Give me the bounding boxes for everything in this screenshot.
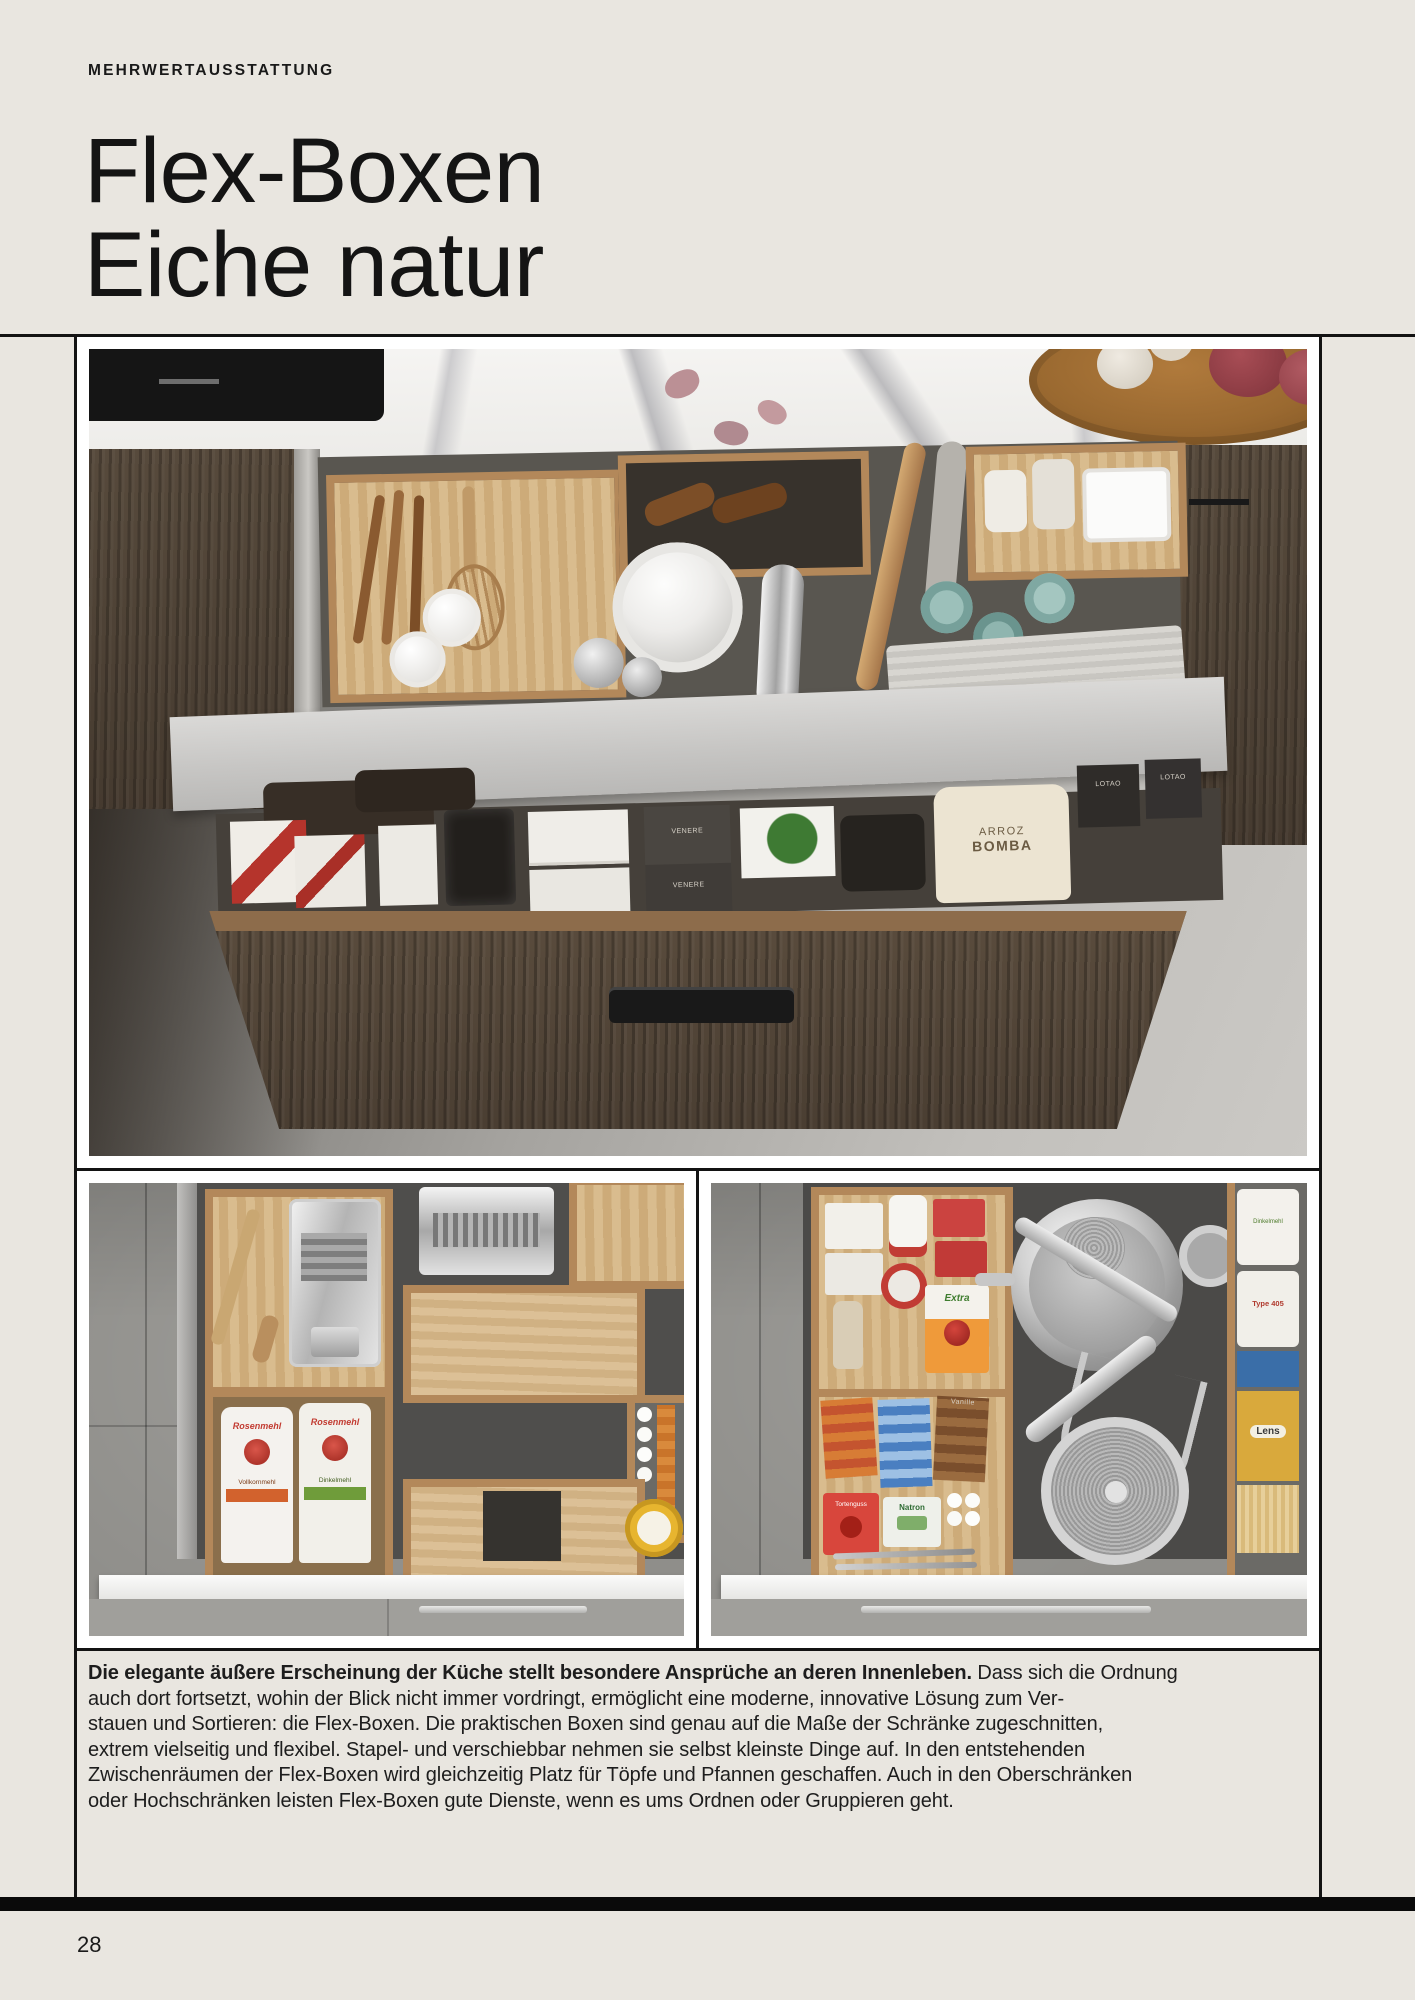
cooktop (89, 349, 384, 421)
tea-box-red-ribbon (294, 834, 366, 908)
chrome-handle (861, 1606, 1151, 1613)
body-lead-rest: Dass sich die Ordnung (972, 1662, 1178, 1684)
flex-box-tablet (403, 1479, 645, 1589)
flex-box-empty-small (569, 1183, 684, 1289)
glass-bottle (833, 1301, 863, 1369)
tile-seam (145, 1183, 147, 1636)
egg (947, 1493, 962, 1508)
kicker: MEHRWERTAUSSTATTUNG (88, 62, 334, 80)
egg (947, 1511, 962, 1526)
egg (965, 1511, 980, 1526)
pasta-cutter-rollers (433, 1213, 540, 1247)
packet-stack-orange (820, 1397, 877, 1478)
flour-color-band (226, 1489, 288, 1502)
dark-board (483, 1491, 561, 1561)
body-line: auch dort fortsetzt, wohin der Blick nic… (88, 1687, 1303, 1713)
wooden-fork (381, 490, 404, 645)
big-photo-drawer-scene: VENERE VENERE ARROZ BOMBA LOTAO LOTAO (89, 349, 1307, 1156)
right-rule (1319, 334, 1322, 1897)
pasta-machine-rollers (301, 1233, 367, 1281)
teal-cup (920, 581, 973, 634)
salt-shaker (984, 470, 1027, 533)
salad-server (710, 480, 790, 526)
green-tea-box (740, 806, 836, 878)
body-copy: Die elegante äußere Erscheinung der Küch… (88, 1661, 1303, 1815)
whisk (462, 486, 476, 572)
natron-illustration (897, 1516, 927, 1530)
pullout-shelf (721, 1575, 1307, 1599)
rice-bag-line2: BOMBA (935, 836, 1070, 856)
packet-stack-vanille: Vanille (933, 1396, 989, 1483)
red-pack (933, 1199, 985, 1237)
sugar-pack (825, 1253, 883, 1295)
venere-label: VENERE (671, 827, 703, 835)
tortenguss-label: Tortenguss (823, 1501, 879, 1508)
flour-variant-label: Vollkornmehl (221, 1479, 293, 1486)
rose-emblem (322, 1435, 348, 1461)
teal-cup (1024, 573, 1075, 624)
footer-band (0, 1897, 1415, 1911)
pepper-shaker (1032, 459, 1075, 530)
catalog-page: MEHRWERTAUSSTATTUNG Flex-Boxen Eiche nat… (0, 0, 1415, 2000)
grater (756, 563, 805, 713)
flour-variant-label: Dinkelmehl (299, 1477, 371, 1484)
title-line-1: Flex-Boxen (84, 124, 544, 218)
flex-box-pantry-right: Dinkelmehl Type 405 Lens (1227, 1183, 1307, 1583)
tortenguss-packet: Tortenguss (823, 1493, 879, 1555)
red-white-tin (881, 1263, 927, 1309)
lentil-label: Lens (1250, 1425, 1285, 1438)
square-dish (1082, 467, 1171, 543)
flour-bag-type405: Type 405 (1237, 1271, 1299, 1347)
script-box (529, 867, 630, 916)
salad-server (641, 479, 718, 529)
type405-label: Type 405 (1237, 1299, 1299, 1308)
rose-emblem (244, 1439, 270, 1465)
flour-brand-label: Rosenmehl (221, 1421, 293, 1431)
lotao-label: LOTAO (1160, 774, 1186, 782)
egg (637, 1427, 652, 1442)
flour-bag-white: Dinkelmehl (1237, 1189, 1299, 1265)
flex-box-empty-wide (403, 1285, 645, 1403)
right-cabinet-handle (1189, 499, 1249, 505)
drawer-rail (177, 1183, 197, 1559)
flour-bag-vollkornmehl: Rosenmehl Vollkornmehl (221, 1407, 293, 1563)
white-canister (889, 1195, 927, 1257)
bread-loaf (355, 767, 476, 812)
drawer-handle (609, 987, 794, 1023)
fruit-illustration (944, 1320, 970, 1346)
metal-tongs (835, 1562, 977, 1570)
body-line: oder Hochschränken leisten Flex-Boxen gu… (88, 1789, 1303, 1815)
pullout-shelf (99, 1575, 684, 1599)
rolling-pin-handle (251, 1314, 281, 1365)
body-lead-bold: Die elegante äußere Erscheinung der Küch… (88, 1662, 972, 1684)
title-line-2: Eiche natur (84, 218, 544, 312)
chrome-handle (419, 1606, 587, 1613)
cooktop-control (159, 379, 219, 384)
dark-coffee-bag (444, 808, 516, 906)
lotao-box: LOTAO (1077, 764, 1141, 828)
body-line: Die elegante äußere Erscheinung der Küch… (88, 1661, 1303, 1687)
flex-box-pasta-machine (205, 1189, 393, 1395)
yellow-tin (625, 1499, 683, 1557)
front-panel-seam (387, 1599, 389, 1636)
flour-bag-dinkelmehl: Rosenmehl Dinkelmehl (299, 1403, 371, 1563)
egg (637, 1447, 652, 1462)
wooden-spoon (352, 494, 385, 644)
lotao-label: LOTAO (1095, 780, 1121, 788)
packet-stack-blue (877, 1398, 932, 1488)
pasta-machine-clamp (311, 1327, 359, 1357)
flex-box-flour: Rosenmehl Vollkornmehl Rosenmehl Dinkelm… (205, 1389, 393, 1589)
rice-bag-arroz-bomba: ARROZ BOMBA (933, 784, 1071, 903)
lower-front-panel (711, 1599, 1307, 1636)
body-line: stauen und Sortieren: die Flex-Boxen. Di… (88, 1712, 1303, 1738)
pot-handle (975, 1273, 1015, 1286)
page-number: 28 (77, 1932, 101, 1958)
rolling-pin (210, 1208, 261, 1346)
gelierzucker-label: Extra (925, 1293, 989, 1304)
flex-box-baking-supplies: Extra (811, 1187, 1013, 1399)
flour-brand-label: Rosenmehl (299, 1417, 371, 1427)
pasta-machine (289, 1199, 381, 1367)
strainer-pan (1041, 1417, 1189, 1565)
left-photo-flexbox-scene: Rosenmehl Vollkornmehl Rosenmehl Dinkelm… (89, 1183, 684, 1636)
body-line: Zwischenräumen der Flex-Boxen wird gleic… (88, 1763, 1303, 1789)
sugar-pack (825, 1203, 883, 1249)
lower-front-panel (89, 1599, 684, 1636)
venere-label: VENERE (673, 881, 705, 889)
chrome-pot (1011, 1199, 1183, 1371)
marble-mortar (611, 541, 743, 673)
white-cup (389, 631, 446, 688)
egg (637, 1407, 652, 1422)
natron-label: Natron (883, 1503, 941, 1512)
fruit-illustration (840, 1516, 862, 1538)
tile-seam (759, 1183, 761, 1636)
lotao-box: LOTAO (1145, 758, 1203, 818)
white-carton (378, 824, 438, 905)
measuring-spoon (622, 657, 663, 698)
natron-packet: Natron (883, 1497, 941, 1547)
script-box (528, 809, 629, 866)
body-line: extrem vielseitig und flexibel. Stapel- … (88, 1738, 1303, 1764)
blue-pack (1237, 1351, 1299, 1387)
lentil-bag: Lens (1237, 1391, 1299, 1481)
yellow-tin-label (637, 1511, 671, 1545)
pasta-cutter-attachment (419, 1187, 554, 1275)
strainer-center-cap (1105, 1481, 1127, 1503)
shaker-flex-box (966, 443, 1189, 581)
gelierzucker-packet: Extra (925, 1285, 989, 1373)
black-pouch (840, 814, 926, 892)
vanille-label: Vanille (937, 1398, 989, 1408)
flex-box-packets: Vanille Tortenguss Natron (811, 1389, 1013, 1589)
red-pack (935, 1241, 987, 1277)
page-title: Flex-Boxen Eiche natur (84, 124, 544, 312)
spaghetti-pack (1237, 1485, 1299, 1553)
upper-drawer-interior (318, 441, 1183, 707)
flour-bag-label: Dinkelmehl (1237, 1219, 1299, 1225)
right-photo-flexbox-scene: Extra Vanille Tortenguss Natron (711, 1183, 1307, 1636)
spaghetti-pack (657, 1405, 675, 1513)
flour-color-band (304, 1487, 366, 1500)
egg (965, 1493, 980, 1508)
lower-drawer-front (161, 911, 1235, 1129)
